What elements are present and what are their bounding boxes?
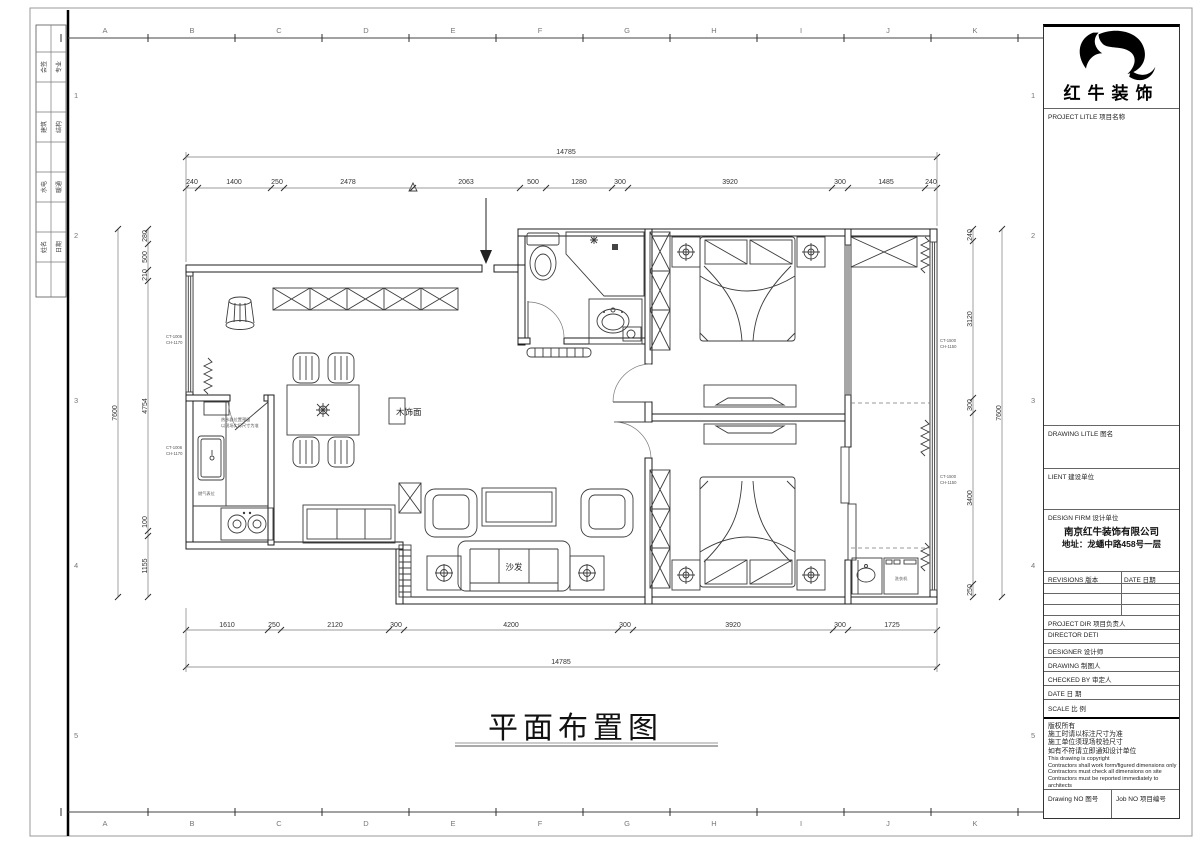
signoff-cell: 专业 <box>55 61 63 73</box>
svg-text:300: 300 <box>614 179 626 186</box>
bedroom1-door <box>613 364 651 402</box>
tv-cabinet <box>704 424 796 444</box>
signoff-cell: 水电 <box>40 181 48 193</box>
drawing-title-label: DRAWING LITLE 图名 <box>1048 428 1177 438</box>
svg-text:500: 500 <box>527 179 539 186</box>
kitchen-note: 以现场实际尺寸为准 <box>221 422 259 429</box>
svg-text:100: 100 <box>142 516 149 528</box>
sliding-door <box>841 447 856 560</box>
grid-letter: F <box>538 26 543 35</box>
grid-letter: C <box>276 26 282 35</box>
svg-text:4754: 4754 <box>142 398 149 414</box>
grid-letter: E <box>450 26 455 35</box>
side-table <box>570 556 604 590</box>
svg-text:210: 210 <box>142 269 149 281</box>
window-tag: CH-1170 <box>166 340 183 345</box>
svg-text:1610: 1610 <box>219 622 235 629</box>
grid-letter: F <box>538 819 543 828</box>
grid-letter: B <box>189 819 194 828</box>
curtain-zigzag <box>204 358 212 394</box>
svg-text:1725: 1725 <box>884 622 900 629</box>
signoff-cell: 日期 <box>55 241 63 253</box>
svg-text:3920: 3920 <box>722 179 738 186</box>
grid-letter: B <box>189 26 194 35</box>
svg-text:2478: 2478 <box>340 179 356 186</box>
project-title-label: PROJECT LITLE 项目名称 <box>1048 111 1177 121</box>
wood-panel-label: 木饰面 <box>396 407 422 417</box>
note-line: This drawing is copyright <box>1048 756 1177 763</box>
shower <box>566 232 644 296</box>
svg-text:250: 250 <box>268 622 280 629</box>
firm-name: 南京红牛装饰有限公司 <box>1044 524 1179 538</box>
svg-text:2063: 2063 <box>458 179 474 186</box>
bed <box>700 477 795 587</box>
grid-number: 2 <box>74 231 78 240</box>
grid-letter: H <box>711 819 716 828</box>
grid-letter: E <box>450 819 455 828</box>
washer-label: 洗衣机 <box>895 575 908 582</box>
note-line: 施工单位须现场校验尺寸 <box>1048 739 1177 747</box>
grid-number: 4 <box>74 561 78 570</box>
stool <box>226 297 254 330</box>
grid-letter: G <box>624 819 630 828</box>
svg-text:300: 300 <box>834 622 846 629</box>
grid-letter: K <box>972 819 977 828</box>
grid-number: 3 <box>1031 396 1035 405</box>
laundry-sink <box>852 558 882 594</box>
living-room: 沙发 <box>399 483 633 597</box>
svg-text:1485: 1485 <box>878 179 894 186</box>
window-tag: CH-1150 <box>940 344 957 349</box>
svg-text:300: 300 <box>967 399 974 411</box>
job-no-label: Job NO 项目编号 <box>1116 793 1177 803</box>
note-line: 版权所有 <box>1048 723 1177 731</box>
bedroom2-door <box>614 422 651 459</box>
kitchen-note: 燃气表位 <box>198 490 215 497</box>
project-dir-label: PROJECT DIR 项目负责人 <box>1048 618 1177 628</box>
gas-stove <box>221 508 273 540</box>
svg-text:240: 240 <box>186 179 198 186</box>
note-line: Contractors must check all dimensions on… <box>1048 769 1177 776</box>
grid-letter: H <box>711 26 716 35</box>
svg-text:7600: 7600 <box>112 405 119 421</box>
note-line: Contractors shall work form/figured dime… <box>1048 763 1177 770</box>
copyright-notes: 版权所有 施工时请以标注尺寸为准 施工单位须现场校验尺寸 如有不符请立即通知设计… <box>1048 723 1177 790</box>
window-tag: CT-1500 <box>940 338 957 343</box>
svg-text:240: 240 <box>925 179 937 186</box>
designer-label: DESIGNER 设计师 <box>1048 646 1177 656</box>
svg-text:1155: 1155 <box>142 558 149 573</box>
title-block: 红牛装饰 PROJECT LITLE 项目名称 DRAWING LITLE 图名… <box>1043 24 1180 819</box>
svg-text:3400: 3400 <box>967 490 974 506</box>
grid-number: 5 <box>1031 731 1035 740</box>
grid-number: 3 <box>74 396 78 405</box>
tv-cabinet <box>704 385 796 407</box>
walls <box>186 229 937 604</box>
dimensions: 240 1400 250 2478 2063 500 1280 300 3920… <box>112 149 1005 672</box>
grid-number: 4 <box>1031 561 1035 570</box>
side-table <box>427 556 461 590</box>
signoff-table: 会签 专业 建筑 结构 水电 暖通 姓名 日期 <box>36 25 66 297</box>
svg-text:3120: 3120 <box>967 311 974 327</box>
window-tag: CT-1006 <box>166 334 183 339</box>
page-title: 平面布置图 <box>488 703 663 747</box>
grid-letter: K <box>972 26 977 35</box>
window-tag: CT-1500 <box>940 474 957 479</box>
bath-mat <box>527 348 591 357</box>
svg-text:1280: 1280 <box>571 179 587 186</box>
grid-number: 1 <box>1031 91 1035 100</box>
kitchen-note: 热水器位置预留 <box>221 416 250 423</box>
date-label: DATE 日 期 <box>1048 688 1177 698</box>
note-line: 如有不符请立即通知设计单位 <box>1048 748 1177 756</box>
grid-letter: G <box>624 26 630 35</box>
signoff-cell: 姓名 <box>40 241 48 253</box>
grid-number: 2 <box>1031 231 1035 240</box>
signoff-cell: 会签 <box>40 61 48 73</box>
bath-door <box>528 301 564 338</box>
grid-letter: I <box>800 26 802 35</box>
svg-text:300: 300 <box>619 622 631 629</box>
svg-text:4200: 4200 <box>503 622 519 629</box>
dining-area: 木饰面 <box>287 353 422 543</box>
kitchen: 热水器位置预留 以现场实际尺寸为准 燃气表位 <box>193 401 273 540</box>
svg-text:250: 250 <box>271 179 283 186</box>
sofa: 沙发 <box>458 541 570 591</box>
svg-text:14785: 14785 <box>556 149 576 156</box>
firm-address: 地址：龙蟠中路458号一层 <box>1044 538 1179 550</box>
svg-text:240: 240 <box>967 229 974 241</box>
kitchen-sink <box>198 436 224 480</box>
grid-letter: A <box>102 819 107 828</box>
curtain-zigzag <box>921 237 929 273</box>
grid-number: 1 <box>74 91 78 100</box>
sideboard <box>303 505 395 543</box>
signoff-cell: 暖通 <box>55 181 63 193</box>
toilet <box>527 233 559 280</box>
svg-text:250: 250 <box>967 584 974 596</box>
coffee-table <box>482 488 556 526</box>
revision-triangle-icon <box>409 183 417 191</box>
basin <box>589 299 642 344</box>
checked-by-label: CHECKED BY 审定人 <box>1048 674 1177 684</box>
grid-letter: C <box>276 819 282 828</box>
grid-letter: J <box>886 819 890 828</box>
bed <box>700 237 795 341</box>
svg-text:280: 280 <box>142 230 149 242</box>
drawing-by-label: DRAWING 制图人 <box>1048 660 1177 670</box>
grid-letter: I <box>800 819 802 828</box>
grid-letter: A <box>102 26 107 35</box>
window-tag: CH-1170 <box>166 451 183 456</box>
svg-text:2120: 2120 <box>327 622 343 629</box>
svg-text:3920: 3920 <box>725 622 741 629</box>
design-firm-label: DESIGN FIRM 设计单位 <box>1048 512 1177 522</box>
svg-text:300: 300 <box>390 622 402 629</box>
entry-hall <box>204 288 458 394</box>
signoff-cell: 建筑 <box>40 121 48 133</box>
svg-text:7600: 7600 <box>996 405 1003 421</box>
svg-text:300: 300 <box>834 179 846 186</box>
grid-letter: D <box>363 819 369 828</box>
client-label: LIENT 建设单位 <box>1048 471 1177 481</box>
washing-machine: 洗衣机 <box>884 558 918 594</box>
curtain-zigzag <box>921 420 929 456</box>
bull-logo-icon <box>1044 29 1179 81</box>
window-tag: CT-1006 <box>166 445 183 450</box>
signoff-cell: 结构 <box>55 121 63 133</box>
grid-letter: J <box>886 26 890 35</box>
sofa-label: 沙发 <box>505 562 523 572</box>
grid-letter: D <box>363 26 369 35</box>
window-tag: CH-1150 <box>940 480 957 485</box>
scale-label: SCALE 比 例 <box>1048 703 1177 713</box>
svg-text:500: 500 <box>142 251 149 263</box>
balcony: 洗衣机 <box>851 237 930 594</box>
svg-text:14785: 14785 <box>551 659 571 666</box>
note-line: Contractors must be reported immediately… <box>1048 776 1177 790</box>
director-label: DIRECTOR DETI <box>1048 632 1177 639</box>
entry-arrow-icon <box>409 183 492 264</box>
brand-name: 红牛装饰 <box>1044 79 1179 104</box>
curtain-zigzag <box>921 543 929 571</box>
svg-text:1400: 1400 <box>226 179 242 186</box>
grid-number: 5 <box>74 731 78 740</box>
